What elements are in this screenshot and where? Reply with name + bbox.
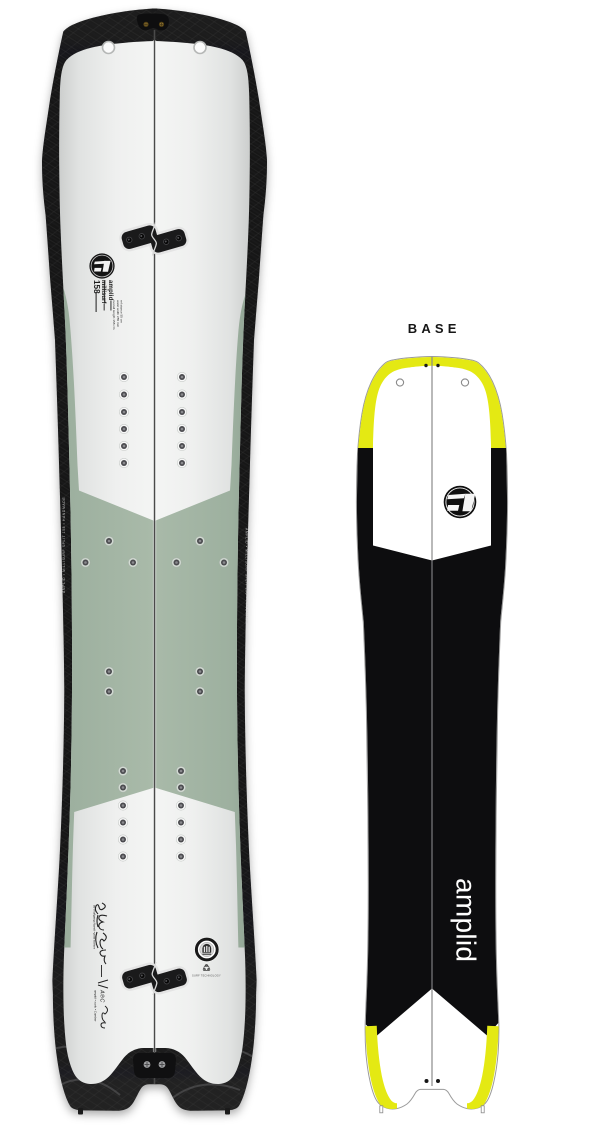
svg-text:A℗C: A℗C [99,989,105,1003]
svg-text:amplid: amplid [451,878,482,962]
svg-text:AMPLID • MILLISURF SPLIT 158 •: AMPLID • MILLISURF SPLIT 158 • HANDMADE [62,497,66,593]
svg-text:amplid • surfy • Camber: amplid • surfy • Camber [94,990,98,1022]
svg-text:amplid: amplid [107,280,113,301]
svg-text:BASE: BASE [408,321,461,336]
svg-text:by Wolfgang Nyvelt • pow surfe: by Wolfgang Nyvelt • pow surfers [93,905,97,950]
svg-text:158: 158 [92,280,101,294]
svg-text:overall length 158 cm: overall length 158 cm [112,300,116,330]
svg-text:waist width 255 mm: waist width 255 mm [116,300,120,328]
svg-text:ref stance 55 cm: ref stance 55 cm [120,300,124,323]
svg-text:SURF TECHNOLOGY: SURF TECHNOLOGY [192,974,221,978]
svg-text:AMPLID • MILLISURF SPLIT 158 •: AMPLID • MILLISURF SPLIT 158 • HANDMADE [245,528,249,624]
